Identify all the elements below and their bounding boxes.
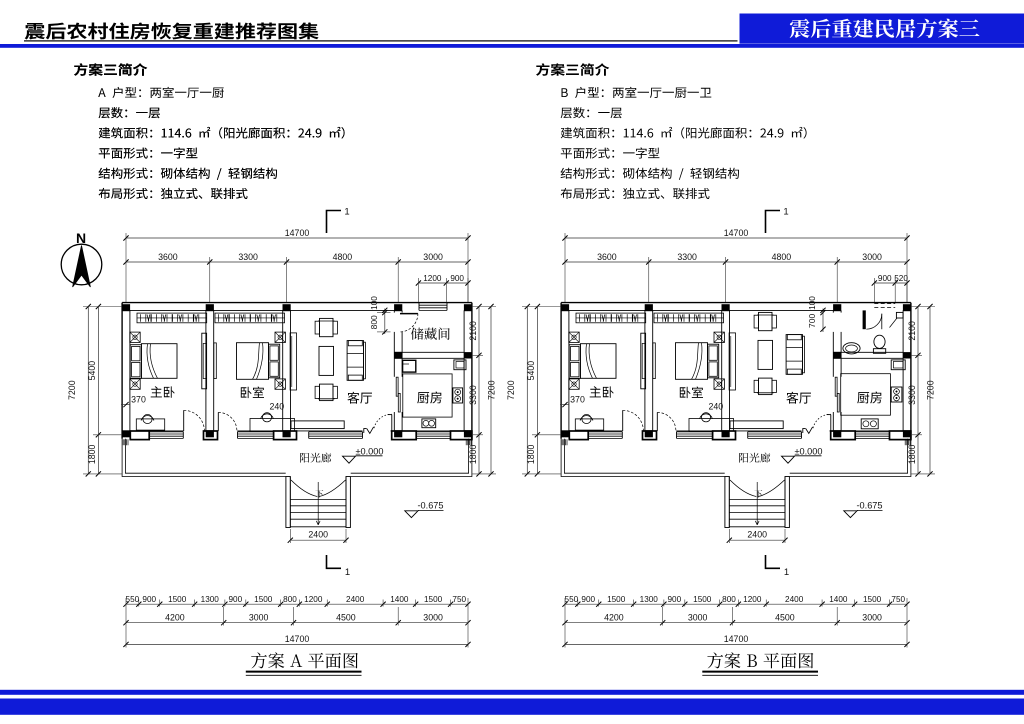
svg-text:3300: 3300 (238, 252, 258, 262)
svg-text:520: 520 (894, 274, 908, 283)
svg-text:750: 750 (452, 595, 466, 604)
svg-text:1: 1 (344, 207, 349, 218)
svg-text:2100: 2100 (468, 321, 478, 341)
svg-text:±0.000: ±0.000 (355, 447, 383, 457)
svg-text:4500: 4500 (336, 613, 356, 623)
svg-text:900: 900 (229, 595, 243, 604)
svg-text:1400: 1400 (390, 595, 409, 604)
svg-text:5400: 5400 (87, 361, 97, 381)
svg-text:14700: 14700 (285, 634, 310, 644)
svg-text:100: 100 (370, 296, 379, 310)
svg-text:2400: 2400 (346, 595, 365, 604)
svg-text:800: 800 (369, 315, 379, 329)
svg-text:1300: 1300 (201, 595, 220, 604)
svg-text:3000: 3000 (249, 613, 269, 623)
svg-text:700: 700 (807, 314, 817, 328)
svg-text:2400: 2400 (308, 530, 328, 540)
svg-text:1500: 1500 (254, 595, 273, 604)
svg-text:100: 100 (808, 296, 817, 310)
svg-text:3600: 3600 (158, 252, 178, 262)
svg-text:-0.675: -0.675 (417, 500, 443, 510)
svg-text:900: 900 (142, 595, 156, 604)
svg-text:4200: 4200 (165, 613, 185, 623)
svg-text:1: 1 (345, 567, 350, 578)
svg-text:1800: 1800 (87, 444, 97, 464)
svg-text:800: 800 (283, 595, 297, 604)
svg-text:14700: 14700 (285, 228, 310, 238)
svg-text:1800: 1800 (468, 444, 478, 464)
svg-text:1200: 1200 (304, 595, 323, 604)
svg-text:900: 900 (878, 274, 892, 283)
svg-text:N: N (76, 230, 86, 246)
svg-text:550: 550 (126, 595, 140, 604)
svg-text:370: 370 (131, 394, 146, 404)
svg-text:900: 900 (450, 274, 464, 283)
svg-text:4800: 4800 (333, 252, 353, 262)
svg-text:7200: 7200 (487, 380, 497, 400)
svg-text:1200: 1200 (423, 274, 442, 283)
svg-text:3000: 3000 (423, 252, 443, 262)
svg-text:1500: 1500 (424, 595, 443, 604)
svg-text:7200: 7200 (67, 380, 77, 400)
svg-text:1500: 1500 (168, 595, 187, 604)
svg-text:3300: 3300 (468, 385, 478, 405)
svg-text:3000: 3000 (423, 613, 443, 623)
svg-text:240: 240 (269, 402, 284, 412)
